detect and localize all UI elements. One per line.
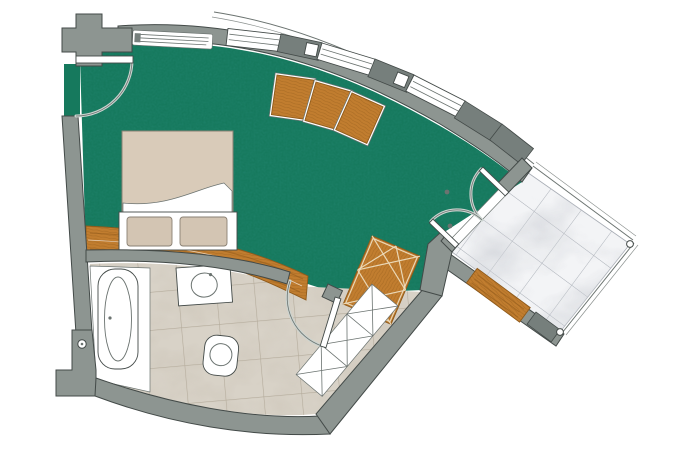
floor-plan-drawing (0, 0, 700, 450)
washbasin (176, 264, 233, 306)
entry-door-leaf (76, 56, 133, 63)
column-marker (304, 43, 318, 57)
toilet (202, 334, 240, 377)
bathtub (98, 269, 138, 369)
entry-threshold-carpet (64, 64, 80, 116)
door-stop-dot (445, 190, 450, 195)
wall-fitting (78, 340, 86, 348)
railing-post-dot (627, 241, 634, 248)
floor-plan-page (0, 0, 700, 450)
bathtub-drain-dot (108, 316, 111, 319)
bed-pillow-right (180, 217, 227, 246)
bed-pillow-left (127, 217, 172, 246)
railing-post-dot (557, 329, 564, 336)
double-bed (119, 131, 237, 250)
door-stop-dot (448, 224, 453, 229)
